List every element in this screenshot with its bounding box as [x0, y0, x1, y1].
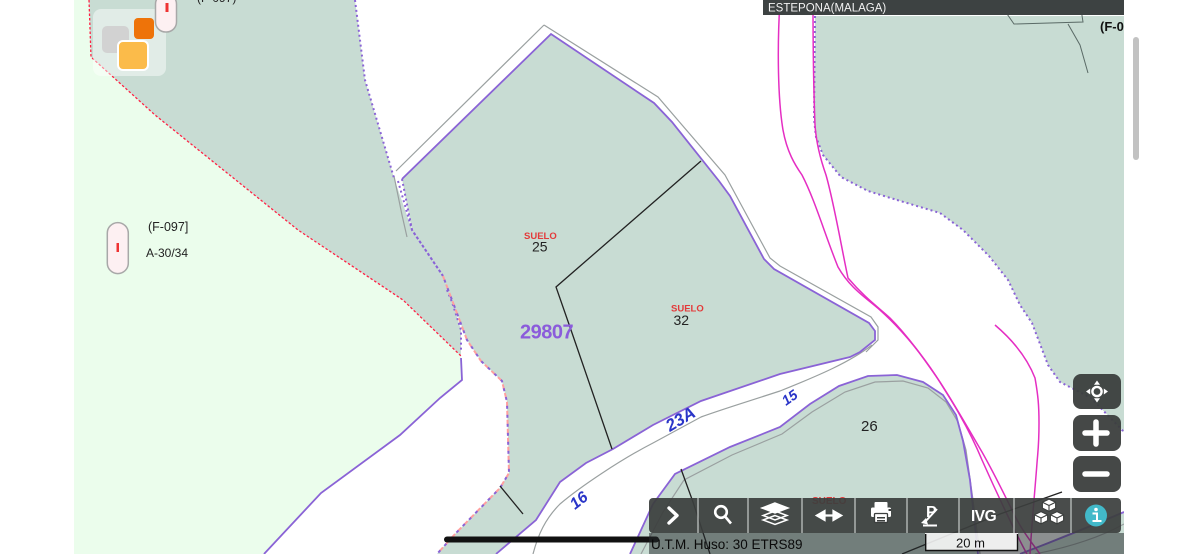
svg-text:25: 25 — [532, 239, 548, 255]
svg-text:(F-097): (F-097) — [197, 0, 236, 5]
svg-text:26: 26 — [861, 418, 878, 435]
svg-text:20 m: 20 m — [956, 536, 985, 551]
svg-text:(F-097]: (F-097] — [148, 220, 188, 234]
svg-text:32: 32 — [674, 312, 690, 328]
svg-text:29807: 29807 — [520, 322, 573, 344]
svg-text:IVG: IVG — [971, 508, 997, 525]
svg-text:ESTEPONA(MALAGA): ESTEPONA(MALAGA) — [768, 3, 886, 15]
svg-text:U.T.M. Huso: 30 ETRS89: U.T.M. Huso: 30 ETRS89 — [651, 537, 803, 552]
svg-text:A-30/34: A-30/34 — [146, 246, 188, 260]
